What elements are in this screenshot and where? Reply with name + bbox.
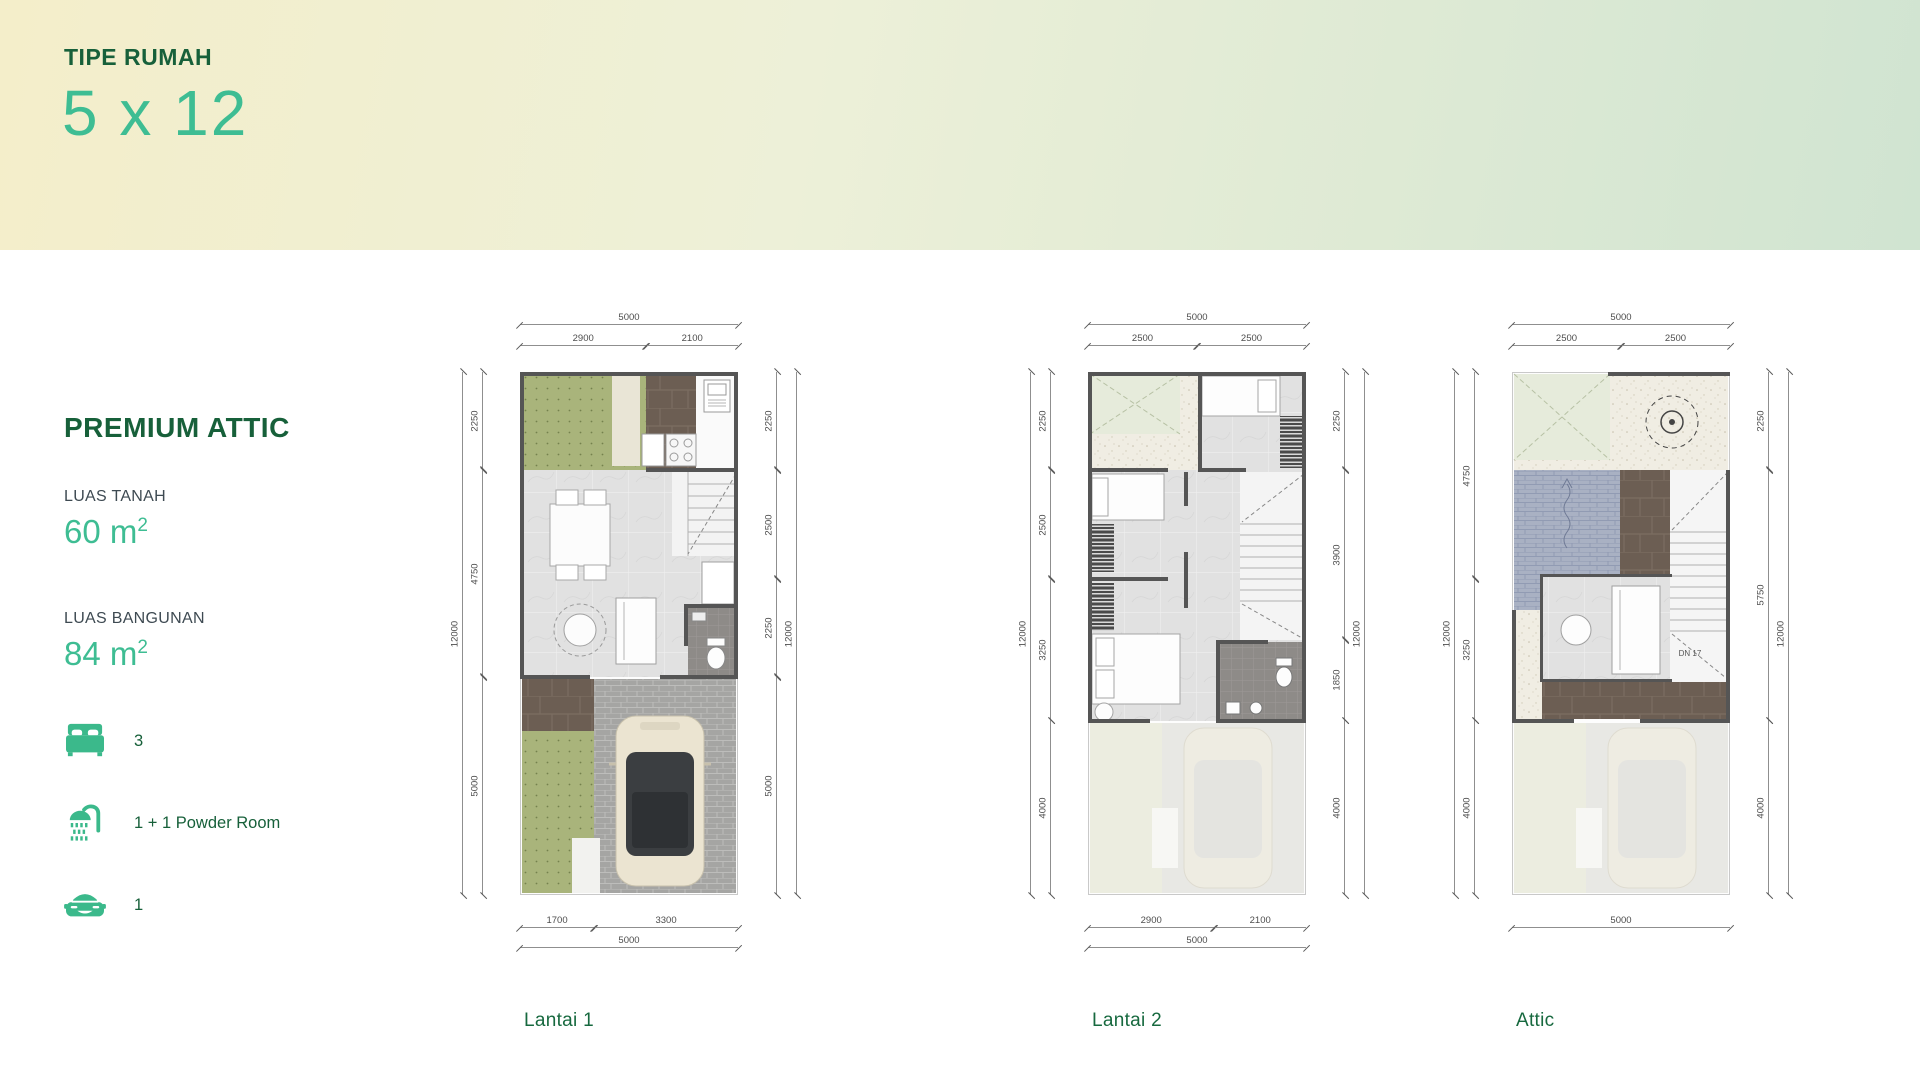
dim-label: 1700: [546, 915, 567, 926]
dim-label: 5000: [1610, 312, 1631, 323]
dim-segment: 3300: [594, 927, 738, 928]
dim-label: 12000: [1018, 620, 1029, 646]
dim-label: 12000: [1776, 620, 1787, 646]
dim-segment: 4000: [1344, 721, 1345, 895]
dim-segment: 3900: [1344, 470, 1345, 640]
dim-segment: 12000: [796, 372, 797, 895]
building-area-label: LUAS BANGUNAN: [64, 610, 205, 628]
dim-label: 5000: [764, 775, 775, 796]
land-area-number: 60: [64, 513, 101, 550]
dim-label: 5000: [618, 312, 639, 323]
dim-segment: 1700: [520, 927, 594, 928]
dim-label: 3300: [655, 915, 676, 926]
dim-label: 5750: [1756, 585, 1767, 606]
shower-icon: [62, 804, 108, 842]
dim-label: 5000: [618, 935, 639, 946]
dim-label: 4000: [1332, 797, 1343, 818]
dim-label: 4750: [470, 563, 481, 584]
variant-title: PREMIUM ATTIC: [64, 412, 290, 444]
dim-label: 2500: [1038, 514, 1049, 535]
dim-segment: 2500: [1197, 345, 1306, 346]
dim-segment: 4750: [1474, 372, 1475, 579]
dim-segment: 4000: [1474, 721, 1475, 895]
floor-plan-drawing-lantai-2: [1088, 372, 1306, 895]
stair-note: DN 17: [1679, 649, 1702, 658]
dim-segment: 4000: [1050, 721, 1051, 895]
dim-segment: 3250: [1050, 579, 1051, 721]
dim-segment: 12000: [1788, 372, 1789, 895]
dim-label: 2900: [1141, 915, 1162, 926]
dim-label: 1850: [1332, 670, 1343, 691]
dim-label: 4750: [1462, 465, 1473, 486]
dim-label: 3900: [1332, 544, 1343, 565]
dim-segment: 1850: [1344, 640, 1345, 721]
dim-label: 12000: [450, 620, 461, 646]
dim-label: 5000: [1610, 915, 1631, 926]
dim-segment: 12000: [1364, 372, 1365, 895]
dim-label: 5000: [1186, 312, 1207, 323]
dim-label: 2250: [1038, 410, 1049, 431]
plan-caption-attic: Attic: [1516, 1010, 1554, 1032]
bathroom-feature: 1 + 1 Powder Room: [62, 804, 280, 842]
floor-plan-lantai-1: 5000290021001700330050001200022504750500…: [520, 372, 738, 895]
dim-segment: 5000: [1088, 947, 1306, 948]
dim-label: 12000: [784, 620, 795, 646]
dim-segment: 2500: [776, 470, 777, 579]
dim-segment: 12000: [1030, 372, 1031, 895]
building-area-number: 84: [64, 635, 101, 672]
dim-label: 2900: [573, 333, 594, 344]
dim-segment: 2500: [1621, 345, 1730, 346]
dim-label: 2250: [1332, 410, 1343, 431]
page: TIPE RUMAH 5 x 12 PREMIUM ATTIC LUAS TAN…: [0, 0, 1920, 1080]
carport-feature: 1: [62, 886, 280, 924]
dim-label: 3250: [1038, 639, 1049, 660]
dim-segment: 2100: [1214, 927, 1306, 928]
dim-label: 2100: [682, 333, 703, 344]
dim-label: 12000: [1352, 620, 1363, 646]
dim-segment: 2250: [1050, 372, 1051, 470]
dim-segment: 12000: [462, 372, 463, 895]
bedroom-count: 3: [134, 732, 143, 751]
dim-label: 2250: [764, 410, 775, 431]
dim-segment: 5750: [1768, 470, 1769, 721]
dim-segment: 5000: [1512, 927, 1730, 928]
floor-plan-drawing-attic: DN 17: [1512, 372, 1730, 895]
bed-icon: [62, 722, 108, 760]
dim-segment: 2250: [776, 372, 777, 470]
dim-label: 2500: [1132, 333, 1153, 344]
dim-segment: 5000: [520, 947, 738, 948]
dim-label: 5000: [470, 775, 481, 796]
dim-label: 12000: [1442, 620, 1453, 646]
dim-label: 2500: [1665, 333, 1686, 344]
hero-banner: TIPE RUMAH 5 x 12: [0, 0, 1920, 250]
dim-label: 2500: [764, 514, 775, 535]
dim-label: 5000: [1186, 935, 1207, 946]
dim-label: 2100: [1250, 915, 1271, 926]
land-area-block: LUAS TANAH 60 m2: [64, 488, 166, 551]
dim-label: 2500: [1241, 333, 1262, 344]
land-area-label: LUAS TANAH: [64, 488, 166, 506]
dim-segment: 4750: [482, 470, 483, 677]
dim-label: 4000: [1756, 797, 1767, 818]
dim-segment: 2500: [1512, 345, 1621, 346]
dim-segment: 2100: [646, 345, 738, 346]
building-area-value: 84 m2: [64, 635, 205, 673]
plan-caption-lantai-1: Lantai 1: [524, 1010, 594, 1032]
dim-segment: 5000: [1512, 324, 1730, 325]
dim-label: 2250: [470, 410, 481, 431]
dim-segment: 5000: [776, 677, 777, 895]
dim-label: 2250: [764, 617, 775, 638]
bedroom-feature: 3: [62, 722, 280, 760]
floor-plan-drawing-lantai-1: [520, 372, 738, 895]
dim-segment: 2900: [520, 345, 646, 346]
carport-count: 1: [134, 896, 143, 915]
car-icon: [62, 886, 108, 924]
floor-plan-attic: DN 17: [1512, 372, 1730, 895]
dim-segment: 2250: [482, 372, 483, 470]
dim-label: 2500: [1556, 333, 1577, 344]
building-area-block: LUAS BANGUNAN 84 m2: [64, 610, 205, 673]
plan-caption-lantai-2: Lantai 2: [1092, 1010, 1162, 1032]
feature-list: 3 1 + 1 Powder Room: [62, 722, 280, 924]
house-type-eyebrow: TIPE RUMAH: [64, 44, 212, 71]
dim-segment: 2500: [1088, 345, 1197, 346]
dim-segment: 2900: [1088, 927, 1214, 928]
dim-segment: 2250: [776, 579, 777, 677]
dim-segment: 5000: [520, 324, 738, 325]
dim-segment: 12000: [1454, 372, 1455, 895]
bathroom-count: 1 + 1 Powder Room: [134, 814, 280, 833]
dim-segment: 2250: [1344, 372, 1345, 470]
dim-label: 4000: [1038, 797, 1049, 818]
house-type-title: 5 x 12: [62, 76, 248, 150]
dim-label: 3250: [1462, 639, 1473, 660]
dim-segment: 5000: [482, 677, 483, 895]
dim-segment: 2250: [1768, 372, 1769, 470]
dim-label: 2250: [1756, 410, 1767, 431]
dim-segment: 3250: [1474, 579, 1475, 721]
land-area-value: 60 m2: [64, 513, 166, 551]
dim-segment: 5000: [1088, 324, 1306, 325]
land-area-unit: m2: [110, 513, 148, 550]
dim-label: 4000: [1462, 797, 1473, 818]
dim-segment: 4000: [1768, 721, 1769, 895]
building-area-unit: m2: [110, 635, 148, 672]
floor-plan-lantai-2: 5000250025002900210050001200022502500325…: [1088, 372, 1306, 895]
dim-segment: 2500: [1050, 470, 1051, 579]
